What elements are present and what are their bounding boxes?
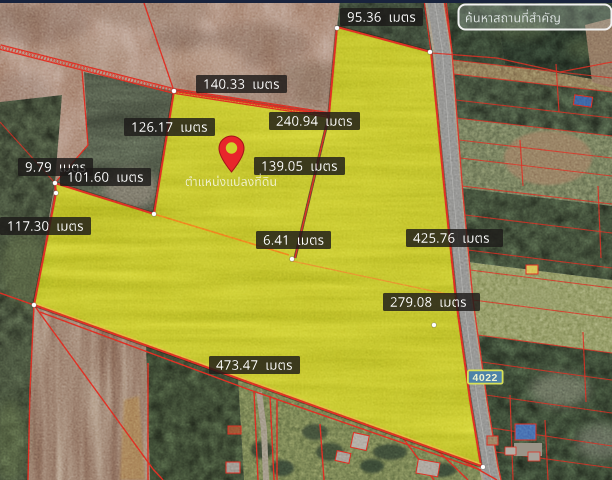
svg-text:4022: 4022	[473, 372, 498, 384]
